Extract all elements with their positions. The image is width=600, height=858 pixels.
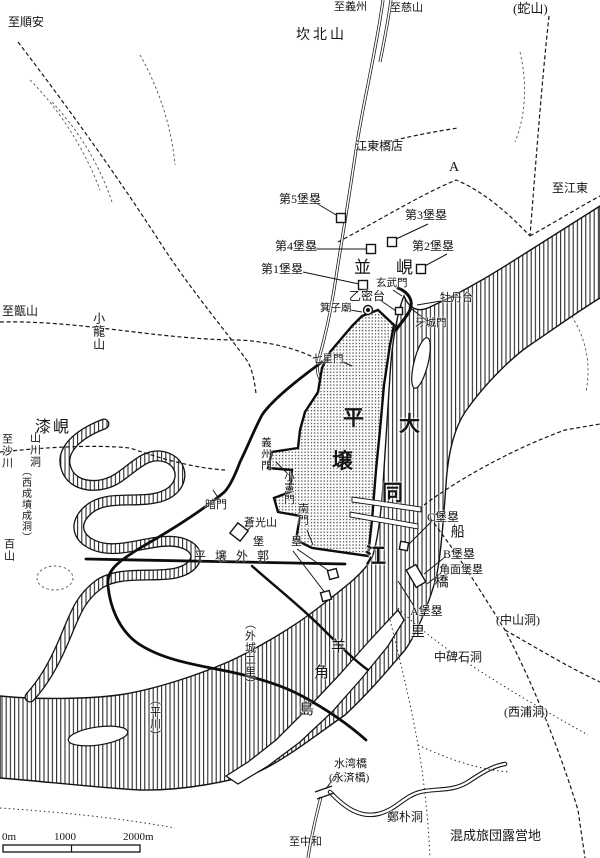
label-oeseong-2ri: （外城二里） [243, 618, 255, 690]
label-ammun: 暗門 [205, 500, 227, 512]
label-soryongsan: 小龍山 [92, 312, 105, 351]
label-yeongje-bridge: (永済橋) [329, 773, 369, 785]
label-seopo-dong: (西浦洞) [504, 706, 548, 719]
label-sajan: (蛇山) [513, 2, 548, 16]
label-seongyori-seon: 船 [448, 524, 463, 539]
label-taedong-gang: 江 [365, 545, 386, 567]
label-seongyori-gyo: 橋 [432, 574, 447, 589]
label-suman-bridge: 水湾橋 [334, 759, 367, 771]
label-to-jasan: 至慈山 [390, 3, 423, 15]
label-kanbuksan: 坎北山 [296, 29, 347, 44]
label-to-gangdong: 至江東 [552, 182, 588, 195]
label-scale-2000: 2000m [123, 832, 154, 844]
label-scale-1000: 1000 [54, 832, 76, 844]
label-byeonghyeon: 並 峴 [354, 259, 417, 277]
map-canvas: 至順安至義州至慈山(蛇山)坎北山江東橋店A至江東第5堡塁第3堡塁第4堡塁第2堡塁… [0, 0, 600, 858]
label-fort3: 第3堡塁 [405, 209, 447, 222]
label-soheon-gate: 小憲門 [283, 471, 294, 506]
label-taedong-dae: 大 [399, 413, 420, 435]
label-yanggak-yang: 羊 [331, 640, 346, 656]
label-jungsan-dong: (中山洞) [496, 614, 540, 627]
label-sancheon-dong: 山川洞 [28, 432, 40, 468]
label-fort5: 第5堡塁 [279, 193, 321, 206]
label-to-uiju: 至義州 [334, 2, 367, 14]
label-fortA: A堡塁 [410, 605, 443, 618]
label-pyongyang-pyeong: 平 [343, 407, 364, 429]
map-labels: 至順安至義州至慈山(蛇山)坎北山江東橋店A至江東第5堡塁第3堡塁第4堡塁第2堡塁… [0, 0, 600, 858]
label-seoseong-dong: （西成墳成洞） [19, 466, 30, 543]
label-eulmildae: 乙密台 [349, 290, 385, 303]
label-pyeongcheon: （平川） [148, 694, 160, 742]
label-yanggak-do: 島 [299, 703, 314, 719]
label-hyeonmu-gate: 玄武門 [376, 278, 408, 289]
label-fortC: C堡塁 [427, 511, 459, 524]
label-moranbong: 牡丹台 [440, 293, 473, 305]
label-aseong-gate: 牙城門 [415, 318, 447, 329]
label-to-sunan: 至順安 [8, 16, 44, 29]
label-honsei-camp: 混成旅団露営地 [450, 829, 541, 843]
label-scale-0: 0m [2, 832, 16, 844]
label-jungbiseok-dong: 中碑石洞 [434, 651, 482, 664]
label-nam-gate: 南門 [297, 503, 308, 526]
label-pyongyang-oegwak: 平壌外郭 [194, 550, 278, 563]
label-to-jeungsan: 至甑山 [2, 305, 38, 318]
label-changgwangsan: 蒼光山 [244, 518, 277, 530]
label-marker-a: A [449, 161, 459, 176]
label-to-sacheon: 至沙川 [0, 433, 12, 469]
label-pyongyang-yang: 壌 [332, 450, 353, 472]
label-baeksan: 百山 [2, 538, 14, 562]
label-fort2: 第2堡塁 [412, 240, 454, 253]
label-fortB: B堡塁 [443, 548, 475, 561]
label-gija-myo: 箕子廟 [320, 303, 352, 314]
label-yanggak-gak: 角 [314, 666, 329, 682]
label-taedong-dong: 同 [382, 482, 403, 504]
label-fort1: 第1堡塁 [261, 263, 303, 276]
label-seongyori-ri: 里 [408, 624, 423, 639]
label-gangdong-kyoten: 江東橋店 [355, 140, 403, 153]
label-jeongpark-dong: 鄭朴洞 [387, 811, 423, 824]
label-uiju-gate: 義州門 [260, 437, 271, 472]
label-to-junghwa: 至中和 [289, 837, 322, 849]
label-fort4: 第4堡塁 [275, 240, 317, 253]
label-boru: 堡 塁 [253, 537, 310, 549]
label-chilseong-gate: 七星門 [312, 354, 344, 365]
